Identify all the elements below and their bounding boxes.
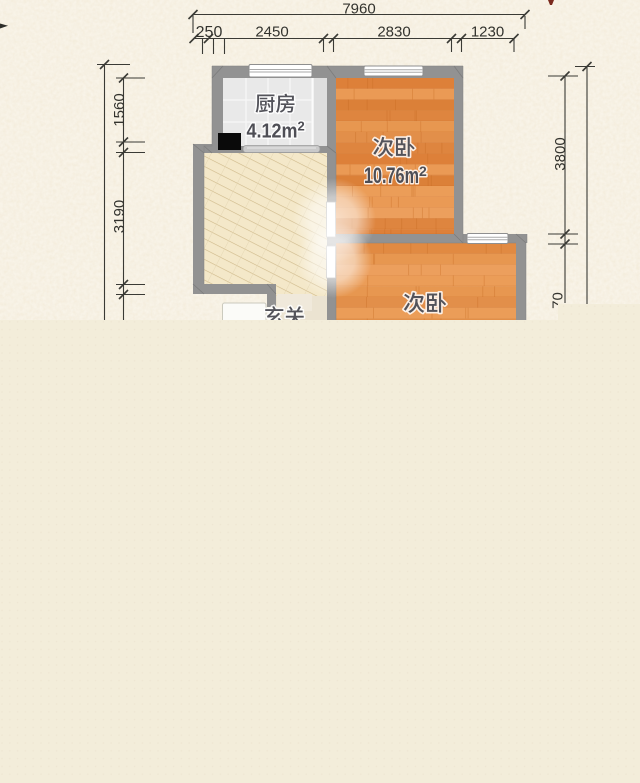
svg-text:1560: 1560 <box>111 93 128 126</box>
svg-text:3190: 3190 <box>111 200 128 233</box>
svg-text:4.12m2: 4.12m2 <box>247 119 305 143</box>
svg-text:7960: 7960 <box>342 1 375 18</box>
svg-text:250: 250 <box>196 24 223 41</box>
svg-text:10.76m2: 10.76m2 <box>364 163 427 188</box>
svg-text:1230: 1230 <box>471 24 504 41</box>
svg-text:2450: 2450 <box>255 24 288 41</box>
svg-text:2830: 2830 <box>377 24 410 41</box>
svg-text:3800: 3800 <box>552 137 569 170</box>
